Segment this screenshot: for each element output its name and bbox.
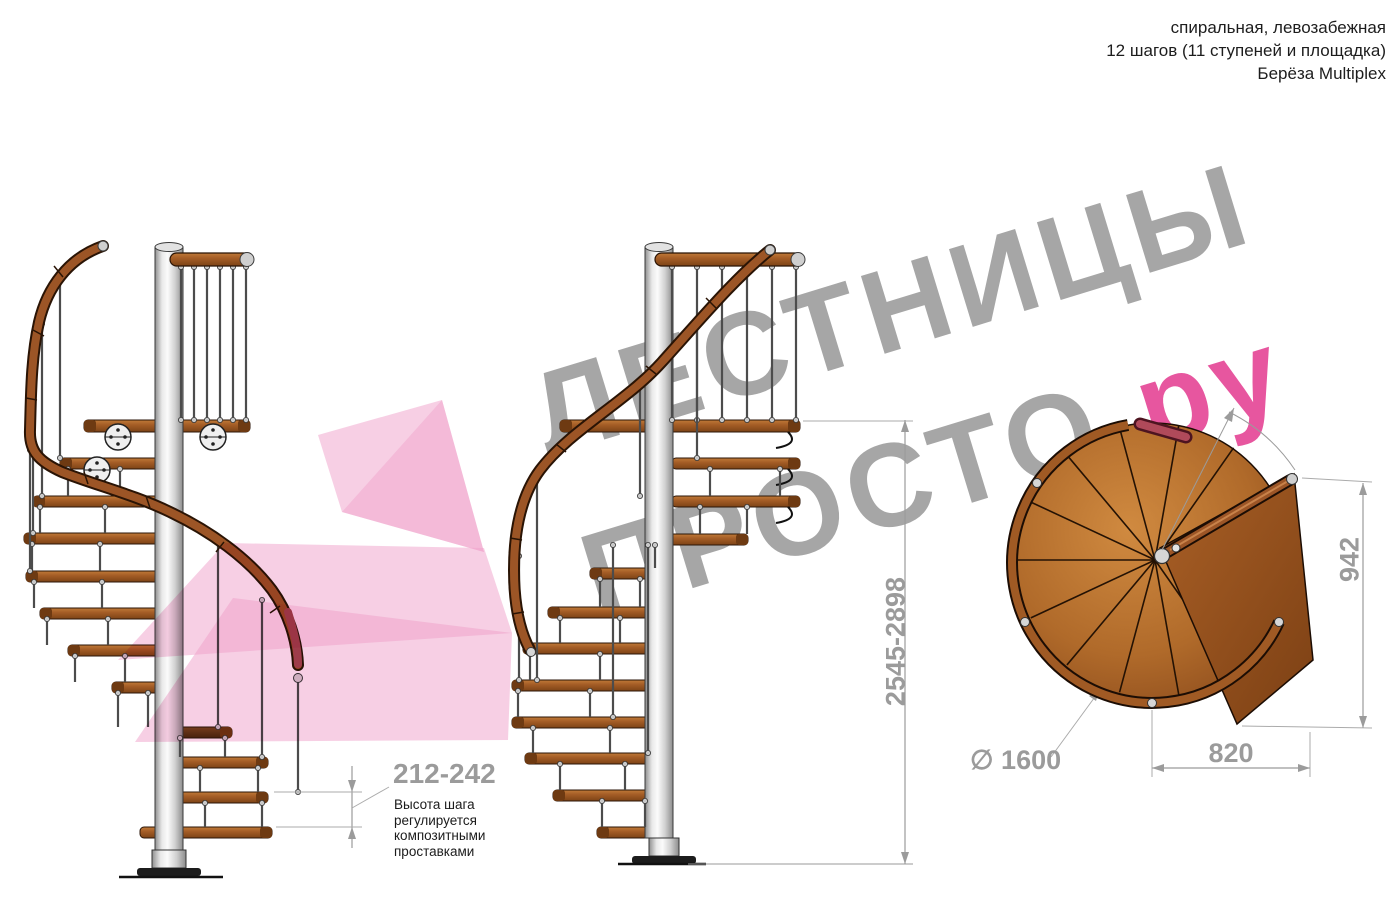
plan-view	[1012, 408, 1313, 724]
left-view-top-railing	[170, 253, 254, 267]
dimension-arrow	[348, 827, 356, 839]
dimension-landing-width-label: 820	[1171, 738, 1291, 769]
connector-plate	[105, 424, 131, 450]
dimension-arrow	[901, 852, 909, 864]
title-line-type: спиральная, левозабежная	[1106, 16, 1386, 39]
front-view-spiral-handrail	[510, 245, 775, 657]
title-line-steps: 12 шагов (11 ступеней и площадка)	[1106, 39, 1386, 62]
step-height-annotation: Высота шага регулируется композитными пр…	[394, 797, 485, 859]
front-view-top-railing	[655, 253, 805, 267]
staircase-drawing-svg	[0, 0, 1400, 922]
annotation-line3: композитными	[394, 828, 485, 844]
dimension-arrow	[1298, 764, 1310, 772]
dimension-arrow	[1152, 764, 1164, 772]
dimension-arrow	[1359, 716, 1367, 728]
dimension-arrow	[901, 420, 909, 432]
diameter-value: 1600	[1001, 745, 1061, 775]
technical-drawing-canvas: ЛЕСТНИЦЫ ПРОСТО.ру	[0, 0, 1400, 922]
step-board	[672, 496, 800, 507]
dimension-diameter-label: ∅ 1600	[970, 745, 1061, 776]
annotation-line4: проставками	[394, 844, 485, 860]
connector-plate	[200, 424, 226, 450]
side-view-front-staircase	[510, 243, 805, 865]
extension-line	[1242, 726, 1372, 728]
extension-line	[352, 787, 389, 808]
dimension-arrow	[348, 780, 356, 792]
dimension-landing-side-label: 942	[1335, 480, 1366, 640]
diameter-symbol: ∅	[970, 745, 994, 775]
title-block: спиральная, левозабежная 12 шагов (11 ст…	[1106, 16, 1386, 85]
annotation-line2: регулируется	[394, 813, 485, 829]
dimension-total-height-label: 2545-2898	[881, 552, 912, 732]
dimension-step-height-label: 212-242	[393, 758, 496, 790]
annotation-line1: Высота шага	[394, 797, 485, 813]
title-line-material: Берёза Multiplex	[1106, 62, 1386, 85]
